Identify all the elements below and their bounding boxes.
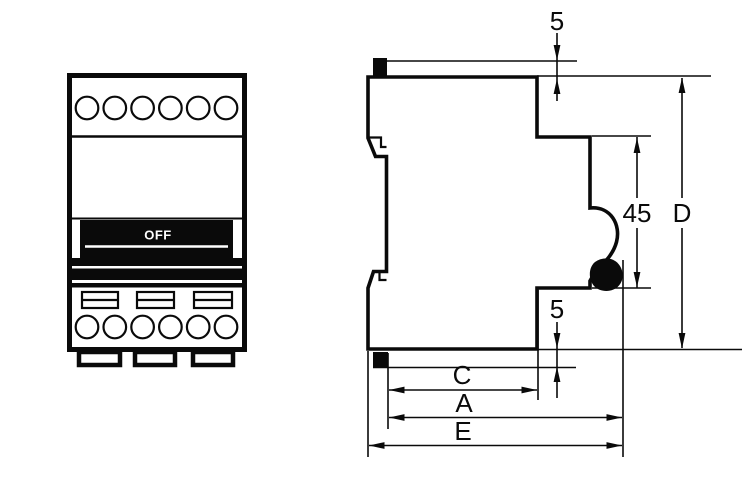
dim-label-overall-depth: E [454, 416, 471, 446]
toggle-handle [590, 258, 623, 291]
side-view: 5 45 D 5 C [368, 6, 742, 457]
arrowhead-up-icon [554, 367, 561, 382]
arrowhead-down-icon [634, 272, 641, 287]
dim-label-overall-height: D [673, 198, 692, 228]
dim-label-depth-with-handle: A [455, 388, 473, 418]
mounting-foot [135, 352, 175, 365]
arrowhead-right-icon [607, 414, 623, 421]
dimension-handle-height: 45 [623, 137, 652, 288]
breaker-side-profile [368, 77, 618, 349]
arrowhead-left-icon [389, 414, 405, 421]
dimension-depth-with-handle: A [389, 388, 622, 421]
arrowhead-right-icon [607, 442, 623, 449]
dimension-overall-height: D [673, 78, 692, 349]
dim-label-body-depth: C [453, 360, 472, 390]
dimension-overall-depth: E [369, 416, 622, 449]
rail-marker-bottom [373, 352, 388, 367]
dim-label-bottom-clearance: 5 [550, 294, 564, 324]
arrowhead-right-icon [522, 387, 538, 394]
off-label: OFF [144, 228, 172, 243]
arrowhead-down-icon [554, 333, 561, 348]
arrowhead-up-icon [679, 78, 686, 93]
arrowhead-up-icon [634, 138, 641, 153]
arrowhead-down-icon [554, 45, 561, 60]
dimension-top-clearance: 5 [550, 6, 564, 101]
dim-label-top-clearance: 5 [550, 6, 564, 36]
front-stripe [70, 258, 245, 266]
arrowhead-left-icon [369, 442, 385, 449]
drawing-canvas: OFF [0, 0, 745, 493]
technical-drawing-page: OFF [0, 0, 745, 493]
arrowhead-down-icon [679, 333, 686, 349]
dim-label-handle-height: 45 [623, 198, 652, 228]
dimension-bottom-clearance: 5 [550, 294, 564, 398]
arrowhead-left-icon [389, 387, 405, 394]
arrowhead-up-icon [554, 79, 561, 94]
front-stripe [70, 269, 245, 281]
mounting-foot [79, 352, 120, 365]
front-view: OFF [70, 76, 246, 366]
front-stripe [70, 283, 245, 288]
mounting-foot [193, 352, 233, 365]
rail-marker-top [373, 58, 387, 76]
